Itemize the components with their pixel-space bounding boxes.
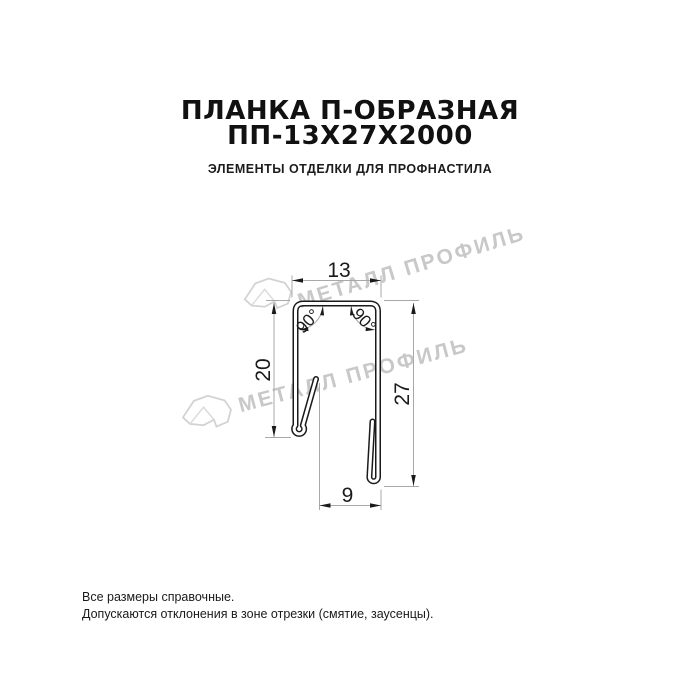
dimension-bottom-width-label: 9 — [342, 484, 354, 507]
footer-note-2: Допускаются отклонения в зоне отрезки (с… — [82, 606, 434, 623]
dimension-left-height-label: 20 — [252, 358, 275, 381]
footer-notes: Все размеры справочные. Допускаются откл… — [82, 589, 434, 622]
dimension-top-width-label: 13 — [327, 259, 350, 282]
footer-note-1: Все размеры справочные. — [82, 589, 434, 606]
dimension-right-height-label: 27 — [391, 382, 414, 405]
